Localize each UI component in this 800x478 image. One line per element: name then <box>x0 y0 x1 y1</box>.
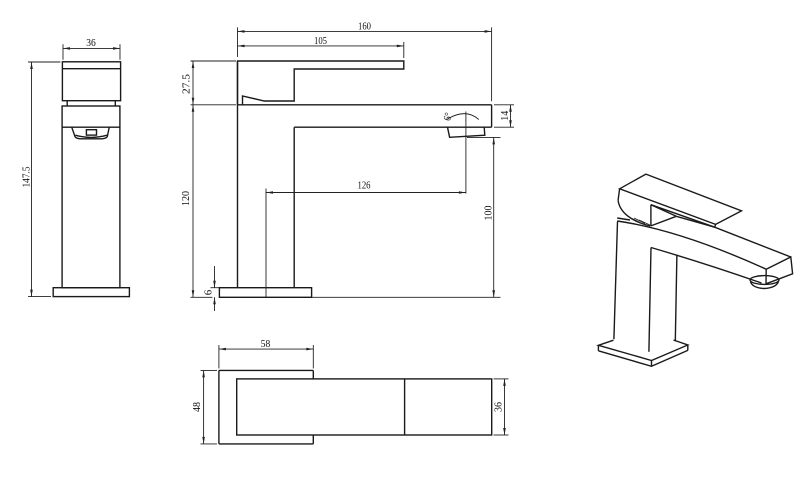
svg-text:36: 36 <box>494 402 505 412</box>
svg-text:105: 105 <box>314 36 327 47</box>
svg-text:160: 160 <box>358 21 371 32</box>
svg-text:126: 126 <box>358 181 371 192</box>
svg-text:6: 6 <box>204 290 215 296</box>
svg-text:147.5: 147.5 <box>22 167 33 188</box>
svg-text:100: 100 <box>484 206 495 221</box>
svg-text:48: 48 <box>192 402 203 412</box>
svg-text:58: 58 <box>261 339 271 350</box>
svg-text:27.5: 27.5 <box>182 74 193 94</box>
svg-text:120: 120 <box>181 191 192 206</box>
svg-text:36: 36 <box>86 38 96 49</box>
